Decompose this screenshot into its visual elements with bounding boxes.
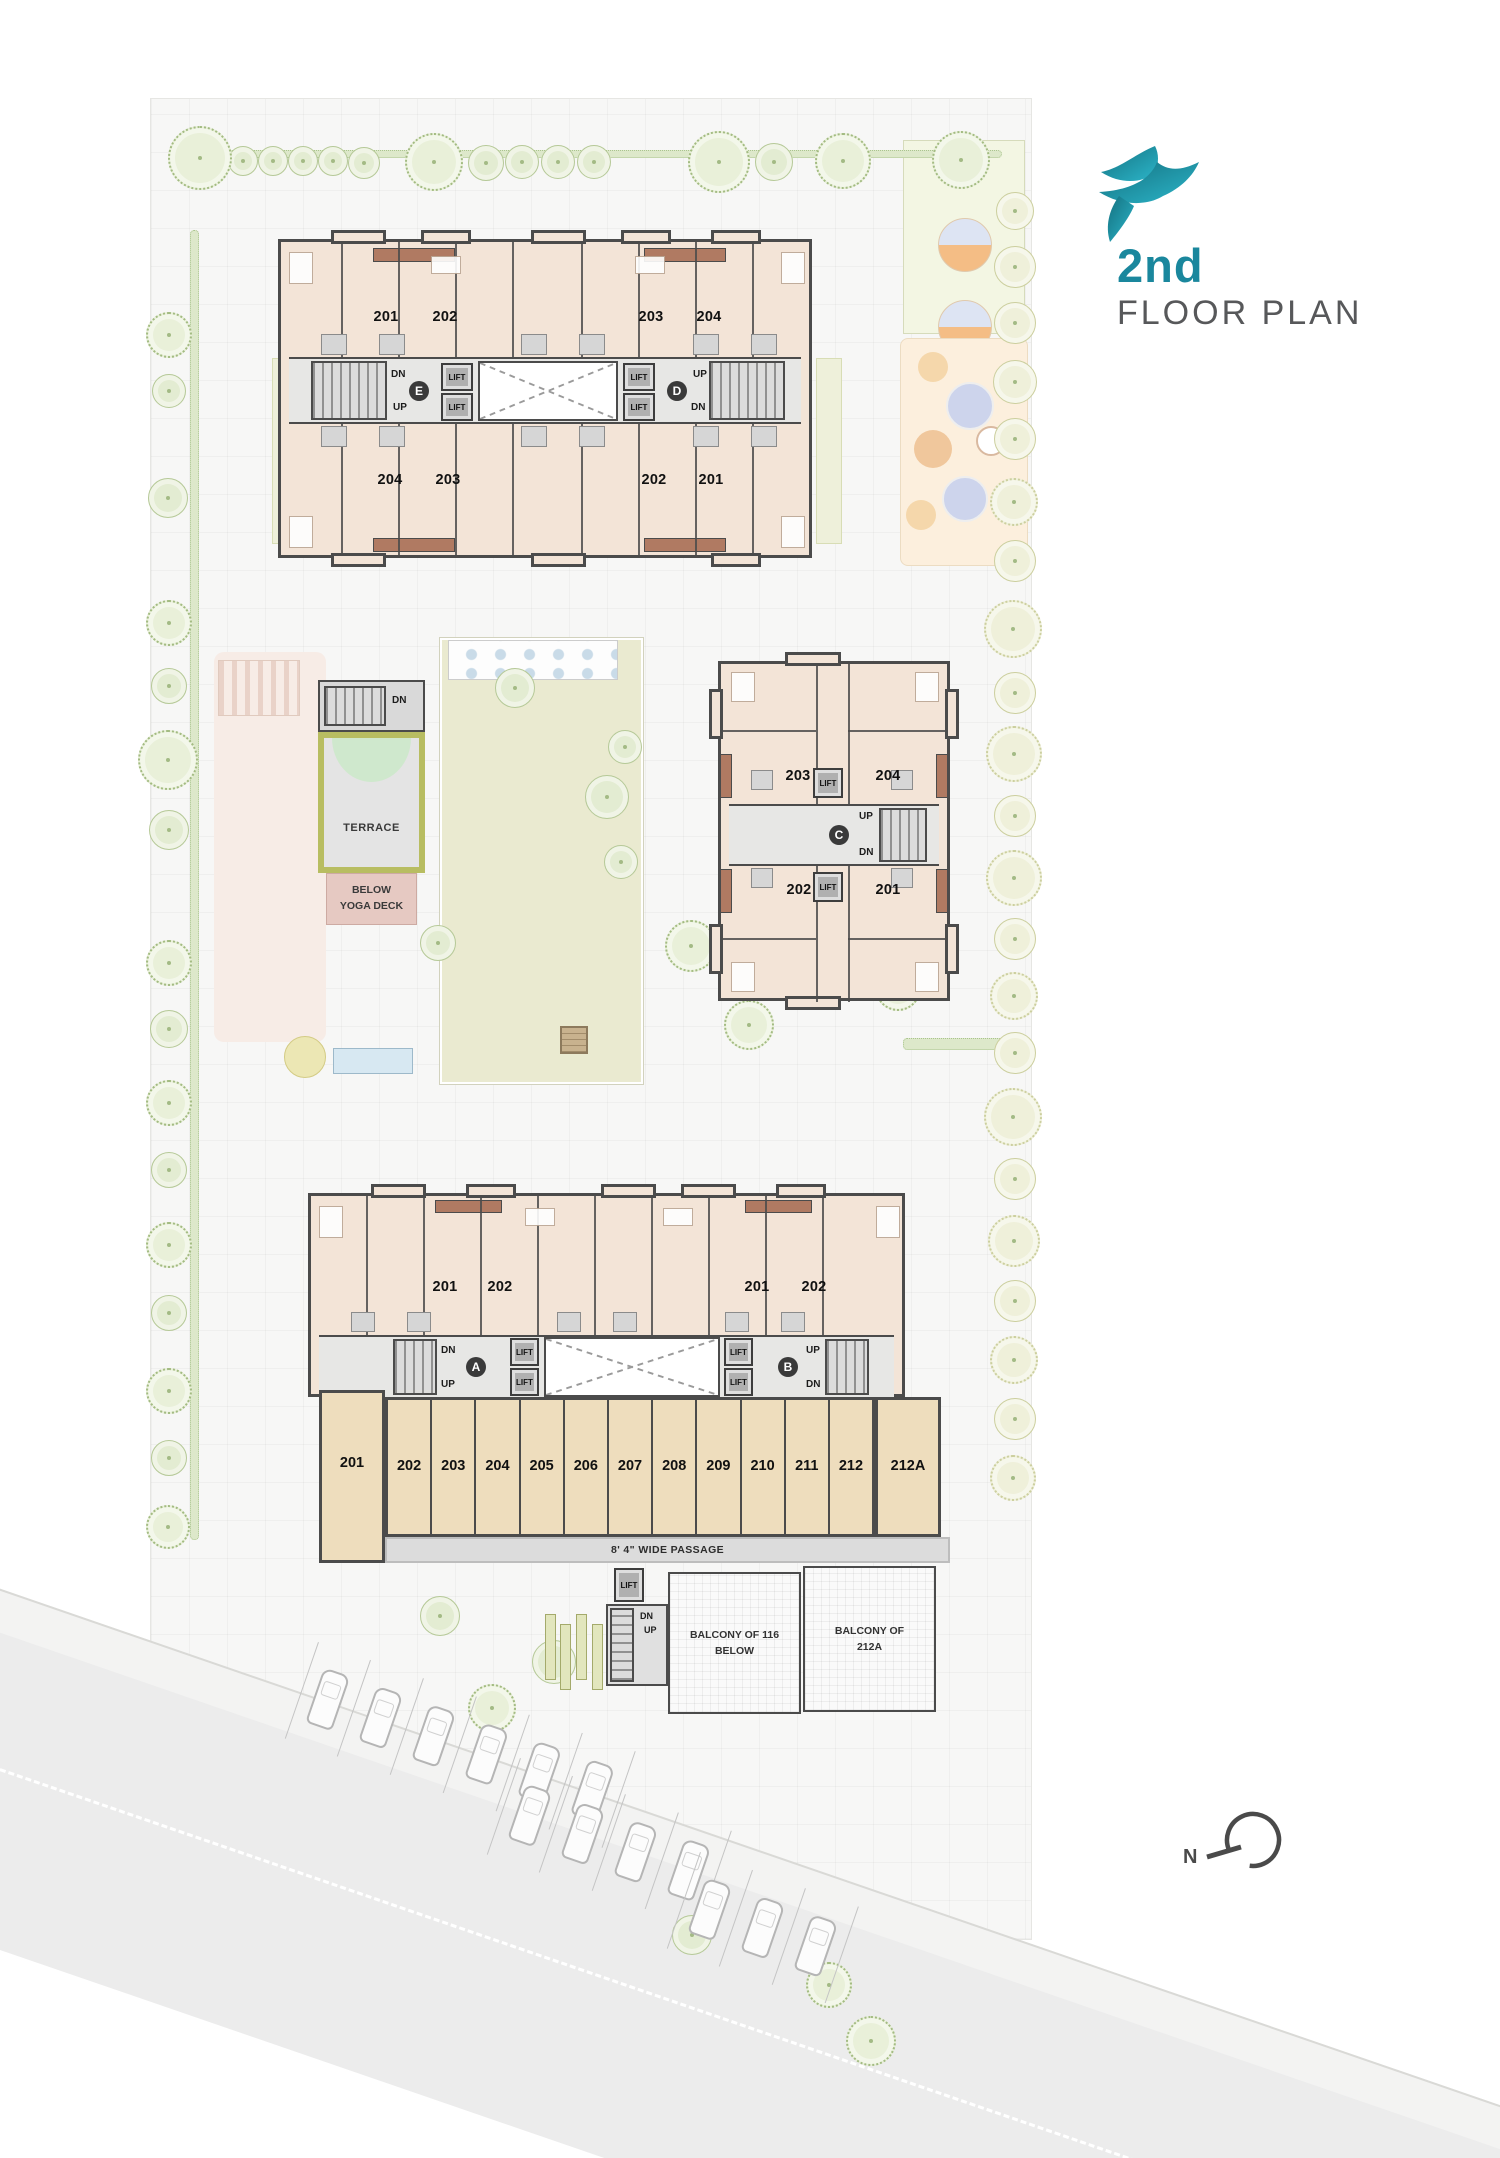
bathroom [351, 1312, 375, 1332]
play-circle [942, 476, 988, 522]
core-label-e: E [409, 381, 429, 401]
shop-number: 201 [340, 1455, 364, 1471]
bathroom [579, 334, 605, 355]
lift: LIFT [623, 363, 655, 391]
unit-number: 201 [698, 472, 723, 488]
bathroom [321, 426, 347, 447]
unit-number: 202 [641, 472, 666, 488]
shop-number: 207 [618, 1458, 642, 1474]
unit-number: 201 [875, 882, 900, 898]
tree-icon [585, 775, 629, 819]
bathroom [725, 1312, 749, 1332]
shop-number: 212 [839, 1458, 863, 1474]
staircase [709, 361, 785, 420]
car-icon [793, 1914, 838, 1978]
partition-wall [651, 1196, 653, 1335]
partition-wall [594, 1196, 596, 1335]
shop-unit: 208 [653, 1400, 697, 1534]
tree-icon [420, 925, 456, 961]
bathroom [557, 1312, 581, 1332]
bed-icon [781, 516, 805, 548]
core-label-b: B [778, 1357, 798, 1377]
unit-number: 203 [785, 768, 810, 784]
balcony-label: BALCONY OF 116 BELOW [689, 1627, 781, 1660]
bed-icon [289, 252, 313, 284]
partition-wall [708, 1196, 710, 1335]
terrace-stair-room: DN [318, 680, 425, 732]
shop-number: 203 [441, 1458, 465, 1474]
bed-icon [876, 1206, 900, 1238]
partition-wall [848, 664, 850, 804]
lift: LIFT [441, 363, 473, 391]
shop-number: 210 [750, 1458, 774, 1474]
lift: LIFT [441, 393, 473, 421]
tree-icon [495, 668, 535, 708]
water-feature [333, 1048, 413, 1074]
tree-icon [994, 672, 1036, 714]
unit-number: 201 [373, 309, 398, 325]
bathroom [693, 426, 719, 447]
lift: LIFT [724, 1338, 753, 1366]
unit-number: 202 [801, 1279, 826, 1295]
bed-icon [731, 962, 755, 992]
yoga-deck-label: BELOW YOGA DECK [336, 883, 408, 915]
building-block-c: LIFT LIFT C UP DN 203 204 202 201 [718, 661, 950, 1001]
unit-projection [601, 1184, 656, 1198]
hedge [190, 230, 199, 1540]
tree-icon [984, 600, 1042, 658]
unit-projection [531, 230, 586, 244]
unit-projection [785, 652, 841, 666]
shop-unit: 204 [476, 1400, 520, 1534]
table-icon [635, 256, 665, 274]
tree-icon [150, 1010, 188, 1048]
tree-icon [420, 1596, 460, 1636]
balcony-strip [720, 754, 732, 798]
tree-icon [994, 246, 1036, 288]
shop-number: 211 [795, 1458, 818, 1474]
unit-number: 202 [487, 1279, 512, 1295]
shop-unit: 209 [697, 1400, 741, 1534]
balcony-label: BALCONY OF 212A [824, 1623, 916, 1656]
north-label: N [1183, 1846, 1197, 1869]
unit-number: 202 [432, 309, 457, 325]
tree-icon [151, 1440, 187, 1476]
bike-rack [592, 1624, 603, 1690]
tree-icon [148, 478, 188, 518]
green-strip [816, 358, 842, 544]
balcony-strip [373, 538, 455, 552]
stair-direction: UP [693, 370, 707, 380]
tree-icon [755, 143, 793, 181]
tree-icon [149, 810, 189, 850]
unit-projection [621, 230, 671, 244]
partition-wall [765, 1196, 767, 1335]
bathroom [751, 334, 777, 355]
partition-wall [848, 866, 850, 1002]
tree-icon [604, 845, 638, 879]
unit-projection [785, 996, 841, 1010]
car-icon [740, 1895, 785, 1959]
staircase [825, 1339, 869, 1395]
shop-number: 209 [706, 1458, 730, 1474]
bike-rack [545, 1614, 556, 1680]
sand-circle [284, 1036, 326, 1078]
tree-icon [846, 2016, 896, 2066]
partition-wall [512, 424, 514, 555]
passage: 8' 4" WIDE PASSAGE [385, 1537, 950, 1563]
tree-icon [151, 668, 187, 704]
floor-plan-canvas: DN UP E LIFT LIFT LIFT LIFT D UP DN 201 … [0, 0, 1500, 2158]
balcony-212a: BALCONY OF 212A [803, 1566, 936, 1712]
balcony-strip [936, 754, 948, 798]
partition-wall [455, 424, 457, 555]
table-icon [525, 1208, 555, 1226]
shop-unit: 210 [742, 1400, 786, 1534]
stair-direction: UP [441, 1380, 455, 1390]
stair-direction: DN [859, 848, 873, 858]
stair-direction: DN [691, 403, 705, 413]
balcony-strip [745, 1200, 812, 1213]
tree-icon [986, 850, 1042, 906]
canopy-icon [938, 218, 992, 272]
lower-stair-room: DN UP [606, 1604, 668, 1686]
staircase [879, 808, 927, 862]
stair-direction: DN [392, 696, 406, 706]
car-icon [507, 1783, 552, 1847]
tree-icon [994, 1280, 1036, 1322]
tree-icon [146, 1505, 190, 1549]
bathroom [751, 868, 773, 888]
stair-direction: UP [644, 1626, 657, 1635]
tree-icon [994, 418, 1036, 460]
unit-number: 201 [744, 1279, 769, 1295]
shop-unit: 212A [875, 1397, 941, 1537]
stair-direction: UP [859, 812, 873, 822]
bed-icon [915, 962, 939, 992]
tree-icon [348, 147, 380, 179]
tree-icon [994, 1032, 1036, 1074]
car-icon [687, 1877, 732, 1941]
stair-direction: DN [806, 1380, 820, 1390]
terrace-label: TERRACE [324, 822, 419, 834]
tree-icon [138, 730, 198, 790]
unit-number: 204 [875, 768, 900, 784]
bathroom [379, 334, 405, 355]
floor-number: 2nd [1117, 238, 1204, 293]
shop-number: 208 [662, 1458, 686, 1474]
tree-icon [146, 312, 192, 358]
tree-icon [994, 302, 1036, 344]
unit-number: 202 [786, 882, 811, 898]
bathroom [321, 334, 347, 355]
lift: LIFT [813, 872, 843, 902]
balcony-strip [936, 869, 948, 913]
shop-unit: 205 [521, 1400, 565, 1534]
car-icon [560, 1801, 605, 1865]
balcony-116: BALCONY OF 116 BELOW [668, 1572, 801, 1714]
lift: LIFT [813, 768, 843, 798]
bed-icon [731, 672, 755, 702]
bed-icon [289, 516, 313, 548]
pergola-seat [560, 1026, 588, 1054]
table-icon [431, 256, 461, 274]
terrace-room: TERRACE [318, 732, 425, 873]
shop-number: 205 [530, 1458, 554, 1474]
shop-unit: 201 [319, 1390, 385, 1563]
bike-rack [576, 1614, 587, 1680]
shop-unit: 206 [565, 1400, 609, 1534]
shop-number: 204 [485, 1458, 509, 1474]
partition-wall [848, 938, 948, 940]
lift: LIFT [623, 393, 655, 421]
bed-icon [915, 672, 939, 702]
shop-unit: 212 [830, 1400, 872, 1534]
open-shaft [544, 1337, 720, 1397]
stair-direction: DN [640, 1612, 653, 1621]
bathroom [693, 334, 719, 355]
partition-wall [721, 730, 816, 732]
balcony-strip [435, 1200, 502, 1213]
shop-unit: 203 [432, 1400, 476, 1534]
staircase [311, 361, 387, 420]
bed-icon [781, 252, 805, 284]
shop-row: 202 203 204 205 206 207 208 209 210 211 … [385, 1397, 875, 1537]
shop-number: 206 [574, 1458, 598, 1474]
bathroom [579, 426, 605, 447]
shop-number: 212A [891, 1458, 926, 1474]
bathroom [613, 1312, 637, 1332]
tree-icon [151, 1152, 187, 1188]
tree-icon [505, 145, 539, 179]
shop-unit: 202 [388, 1400, 432, 1534]
tree-icon [541, 145, 575, 179]
tree-icon [468, 145, 504, 181]
tree-icon [990, 972, 1038, 1020]
partition-wall [480, 1196, 482, 1335]
tree-icon [146, 940, 192, 986]
tree-icon [152, 374, 186, 408]
tree-icon [318, 146, 348, 176]
partition-wall [848, 730, 948, 732]
unit-projection [711, 553, 761, 567]
stair-direction: UP [393, 403, 407, 413]
tree-icon [228, 146, 258, 176]
unit-number: 203 [435, 472, 460, 488]
hedge [903, 1038, 1003, 1050]
lift: LIFT [724, 1368, 753, 1396]
bird-logo-icon [1093, 146, 1205, 250]
shop-unit: 211 [786, 1400, 830, 1534]
bathroom [751, 426, 777, 447]
tree-icon [994, 1398, 1036, 1440]
car-icon [613, 1820, 658, 1884]
bed-icon [319, 1206, 343, 1238]
tree-icon [990, 1455, 1036, 1501]
lift: LIFT [510, 1368, 539, 1396]
tree-icon [990, 478, 1038, 526]
building-block-ed: DN UP E LIFT LIFT LIFT LIFT D UP DN 201 … [278, 239, 812, 558]
bathroom [407, 1312, 431, 1332]
shop-unit: 207 [609, 1400, 653, 1534]
unit-number: 204 [696, 309, 721, 325]
planter-box [448, 640, 618, 680]
tree-icon [688, 131, 750, 193]
bathroom [781, 1312, 805, 1332]
unit-projection [466, 1184, 516, 1198]
unit-projection [945, 924, 959, 974]
partition-wall [512, 242, 514, 357]
lift: LIFT [614, 1568, 644, 1602]
tree-icon [146, 1368, 192, 1414]
tree-icon [996, 192, 1034, 230]
tree-icon [986, 726, 1042, 782]
staircase [610, 1608, 634, 1682]
tree-icon [990, 1336, 1038, 1384]
unit-projection [421, 230, 471, 244]
unit-number: 203 [638, 309, 663, 325]
tree-icon [405, 133, 463, 191]
tree-icon [994, 918, 1036, 960]
bathroom [379, 426, 405, 447]
bike-rack [560, 1624, 571, 1690]
unit-number: 204 [377, 472, 402, 488]
tree-icon [988, 1215, 1040, 1267]
tree-icon [724, 1000, 774, 1050]
tree-icon [258, 146, 288, 176]
play-circle [946, 382, 994, 430]
staircase [393, 1339, 437, 1395]
stair-direction: UP [806, 1346, 820, 1356]
tree-icon [146, 1222, 192, 1268]
bathroom [521, 334, 547, 355]
north-arrow-icon [1195, 1795, 1295, 1885]
table-icon [663, 1208, 693, 1226]
tree-icon [984, 1088, 1042, 1146]
balcony-strip [644, 538, 726, 552]
building-block-ab: DN UP A LIFT LIFT LIFT LIFT B UP DN 201 … [308, 1193, 905, 1397]
ramp-steps [218, 660, 300, 716]
tree-icon [577, 145, 611, 179]
car-icon [358, 1685, 403, 1749]
tree-icon [815, 133, 871, 189]
core-label-d: D [667, 381, 687, 401]
page-title: FLOOR PLAN [1117, 294, 1362, 333]
tree-icon [168, 126, 232, 190]
car-icon [305, 1667, 350, 1731]
unit-number: 201 [432, 1279, 457, 1295]
open-shaft [478, 361, 618, 421]
terrace-green-arc [332, 738, 411, 782]
partition-wall [721, 938, 816, 940]
play-circle [918, 352, 948, 382]
partition-wall [822, 1196, 824, 1335]
tree-icon [932, 131, 990, 189]
play-circle [906, 500, 936, 530]
core-label-c: C [829, 825, 849, 845]
unit-projection [331, 553, 386, 567]
tree-icon [994, 540, 1036, 582]
lift: LIFT [510, 1338, 539, 1366]
partition-wall [638, 424, 640, 555]
core-label-a: A [466, 1357, 486, 1377]
bathroom [751, 770, 773, 790]
tree-icon [994, 795, 1036, 837]
tree-icon [146, 600, 192, 646]
unit-projection [709, 924, 723, 974]
stair-direction: DN [441, 1346, 455, 1356]
stair-direction: DN [391, 370, 405, 380]
terrace-block: DN TERRACE BELOW YOGA DECK [318, 680, 425, 925]
unit-projection [531, 553, 586, 567]
car-icon [411, 1704, 456, 1768]
staircase [324, 686, 386, 726]
play-circle [914, 430, 952, 468]
bathroom [521, 426, 547, 447]
tree-icon [608, 730, 642, 764]
tree-icon [146, 1080, 192, 1126]
balcony-strip [720, 869, 732, 913]
unit-projection [331, 230, 386, 244]
car-icon [464, 1722, 509, 1786]
yoga-deck-below: BELOW YOGA DECK [326, 873, 417, 925]
tree-icon [993, 360, 1037, 404]
unit-projection [371, 1184, 426, 1198]
tree-icon [288, 146, 318, 176]
shop-number: 202 [397, 1458, 421, 1474]
tree-icon [994, 1158, 1036, 1200]
tree-icon [151, 1295, 187, 1331]
unit-projection [776, 1184, 826, 1198]
